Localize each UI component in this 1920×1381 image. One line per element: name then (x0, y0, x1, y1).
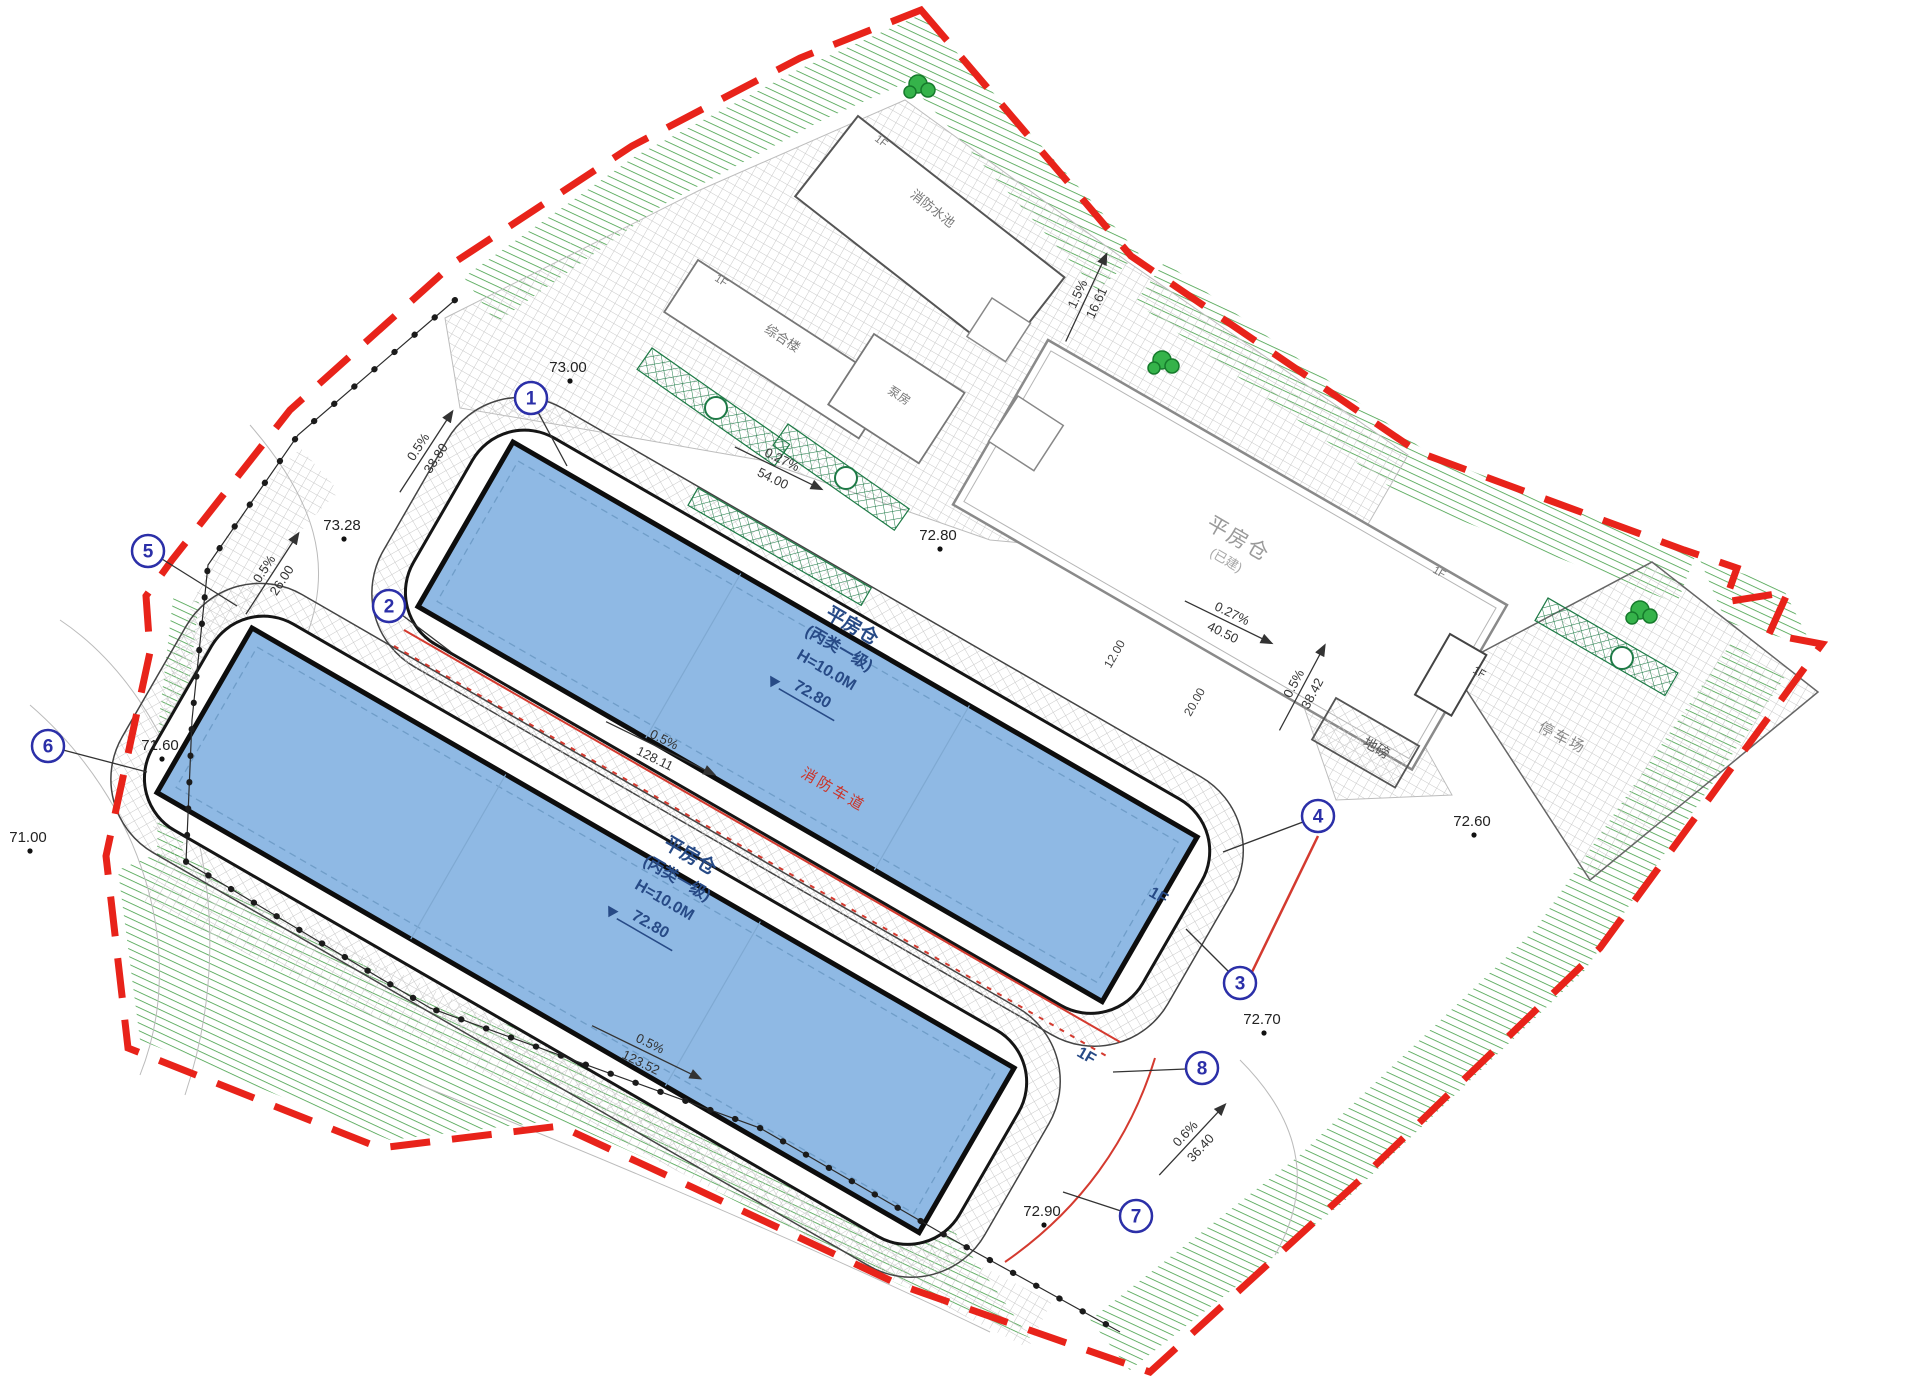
site-plan-svg: 平房仓 (已建) 1F 消防水池 1F 综合楼 1F 泵房 (0, 0, 1920, 1381)
spot-elevation: 72.90 (1023, 1203, 1061, 1220)
svg-text:4: 4 (1313, 807, 1324, 828)
axis-marker-8: 8 (1113, 1052, 1218, 1084)
svg-text:1: 1 (526, 389, 537, 410)
planting-strip-marker (835, 467, 857, 489)
svg-text:5: 5 (143, 542, 154, 563)
svg-text:6: 6 (43, 737, 54, 758)
svg-text:2: 2 (384, 597, 395, 618)
spot-elevation: 72.60 (1453, 813, 1491, 830)
spot-elevation: 72.70 (1243, 1011, 1281, 1028)
axis-marker-3: 3 (1186, 929, 1256, 999)
dimension-text: 20.00 (1181, 685, 1208, 718)
site-plan-drawing: 平房仓 (已建) 1F 消防水池 1F 综合楼 1F 泵房 (0, 0, 1920, 1381)
spot-elevation: 71.60 (141, 737, 179, 754)
dimension-annotations: 12.00 20.00 (1101, 637, 1208, 718)
spot-elevation: 71.00 (9, 829, 47, 846)
dimension-text: 12.00 (1101, 637, 1128, 670)
spot-elevation: 73.00 (549, 359, 587, 376)
spot-elevation: 72.80 (919, 527, 957, 544)
svg-text:7: 7 (1131, 1207, 1142, 1228)
svg-text:3: 3 (1235, 974, 1246, 995)
slope-annotation: 0.6% 36.40 (1147, 1093, 1239, 1188)
planting-strip-marker (705, 397, 727, 419)
planting-strip-marker (1611, 647, 1633, 669)
warehouse-lower-floor: 1F (1074, 1044, 1099, 1068)
svg-text:8: 8 (1197, 1059, 1208, 1080)
svg-text:1F: 1F (1074, 1044, 1099, 1068)
spot-elevation: 73.28 (323, 517, 361, 534)
